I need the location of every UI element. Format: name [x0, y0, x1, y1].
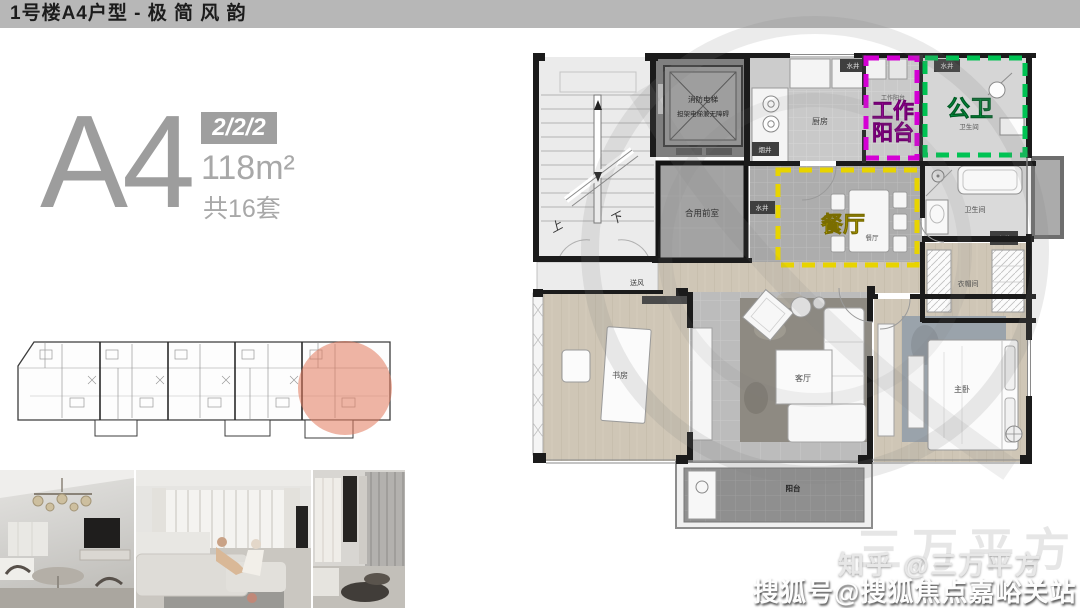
- watermark-sohu: 搜狐号@搜狐焦点嘉峪关站: [753, 572, 1076, 608]
- label-dining-small: 餐厅: [866, 233, 880, 242]
- label-water-shaft-dining: 水井: [756, 203, 770, 212]
- label-living: 客厅: [795, 373, 811, 383]
- person-1: [217, 537, 227, 547]
- tv-screen: [84, 518, 120, 548]
- chandelier-icon: [33, 494, 91, 511]
- label-air-supply: 送风: [630, 278, 644, 287]
- coffee-table: [341, 582, 389, 602]
- photo-1-art: [0, 470, 134, 608]
- floor-plan: 上 下 消防电梯 担架电梯兼无障碍 合用前室: [533, 25, 1062, 528]
- label-kitchen: 厨房: [812, 116, 828, 126]
- photo-3-art: [313, 470, 405, 608]
- photo-interior-2: [136, 470, 311, 608]
- tv-screen: [296, 506, 308, 552]
- label-elevator-1: 消防电梯: [688, 94, 718, 104]
- slide-page: 1号楼A4户型 - 极 简 风 韵 A4 2/2/2 118m² 共16套: [0, 0, 1080, 608]
- label-bathroom-small: 卫生间: [959, 122, 979, 131]
- dog: [247, 593, 257, 603]
- highlight-text-dining: 餐厅: [821, 212, 865, 237]
- label-elevator-2: 担架电梯兼无障碍: [677, 109, 730, 118]
- unit-location-highlight: [298, 341, 392, 435]
- label-balcony: 阳台: [786, 483, 801, 493]
- label-water-shaft-kitchen: 水井: [847, 61, 861, 70]
- photo-interior-3: [313, 470, 405, 608]
- building-overview-plan: [18, 341, 392, 438]
- photo-2-art: [136, 470, 311, 608]
- photo-interior-1: [0, 470, 134, 608]
- label-master: 主卧: [954, 384, 970, 394]
- person-2: [251, 539, 261, 549]
- label-smoke-shaft: 烟井: [759, 145, 773, 154]
- label-bathroom: 卫生间: [965, 205, 986, 214]
